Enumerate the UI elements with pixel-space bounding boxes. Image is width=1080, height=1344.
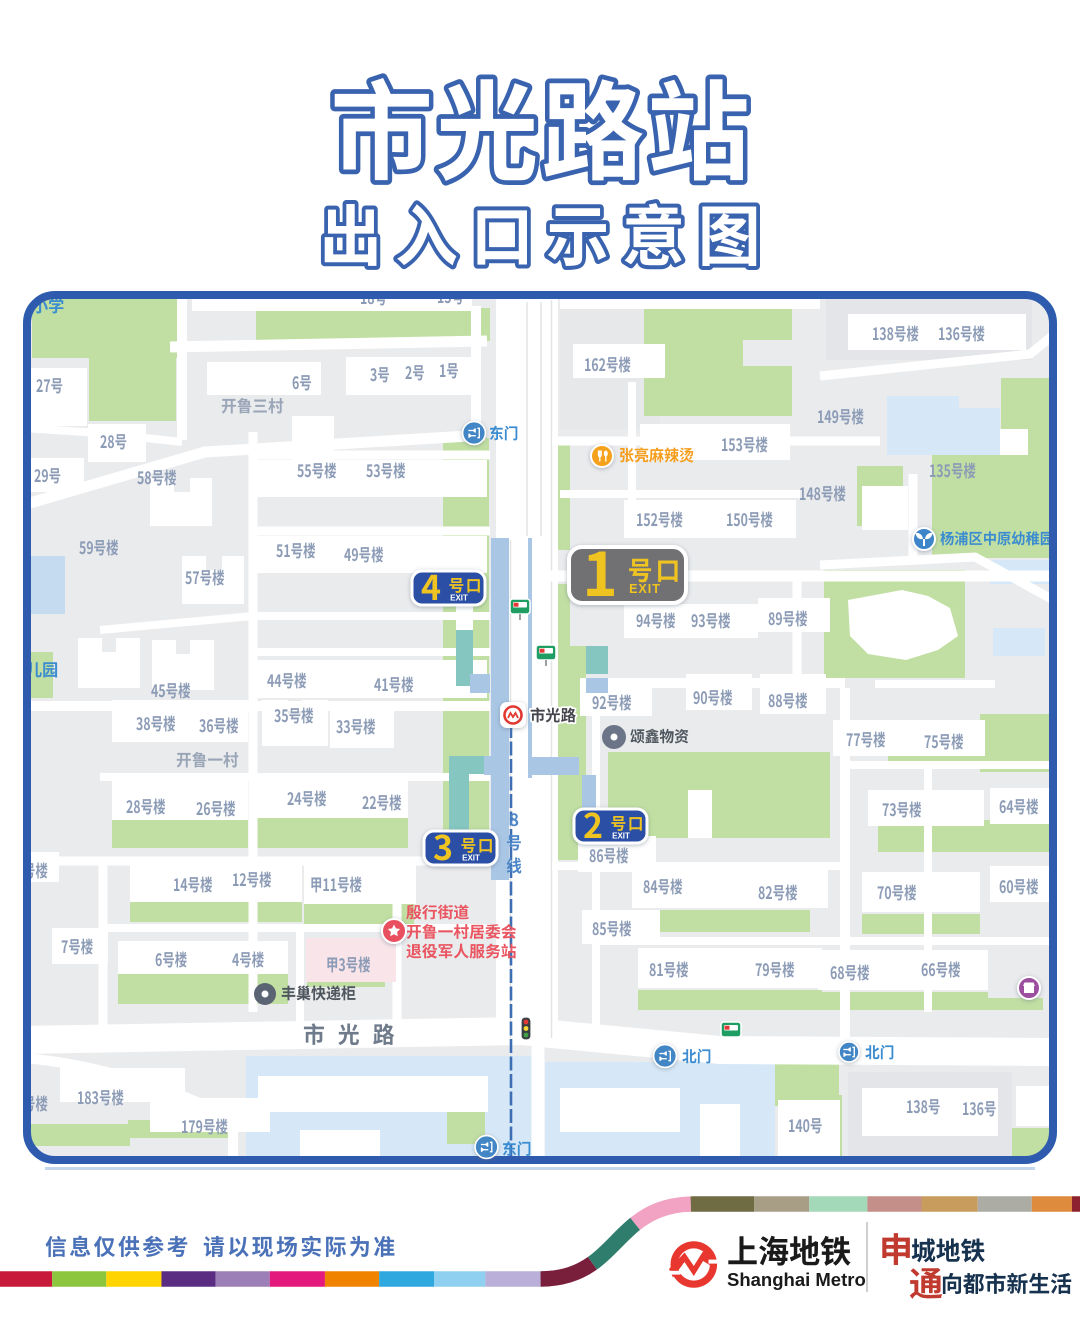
svg-text:EXIT: EXIT [629,582,661,596]
svg-text:EXIT: EXIT [450,594,468,603]
svg-text:EXIT: EXIT [612,832,630,841]
svg-text:Shanghai Metro: Shanghai Metro [727,1269,866,1290]
svg-text:EXIT: EXIT [462,854,480,863]
